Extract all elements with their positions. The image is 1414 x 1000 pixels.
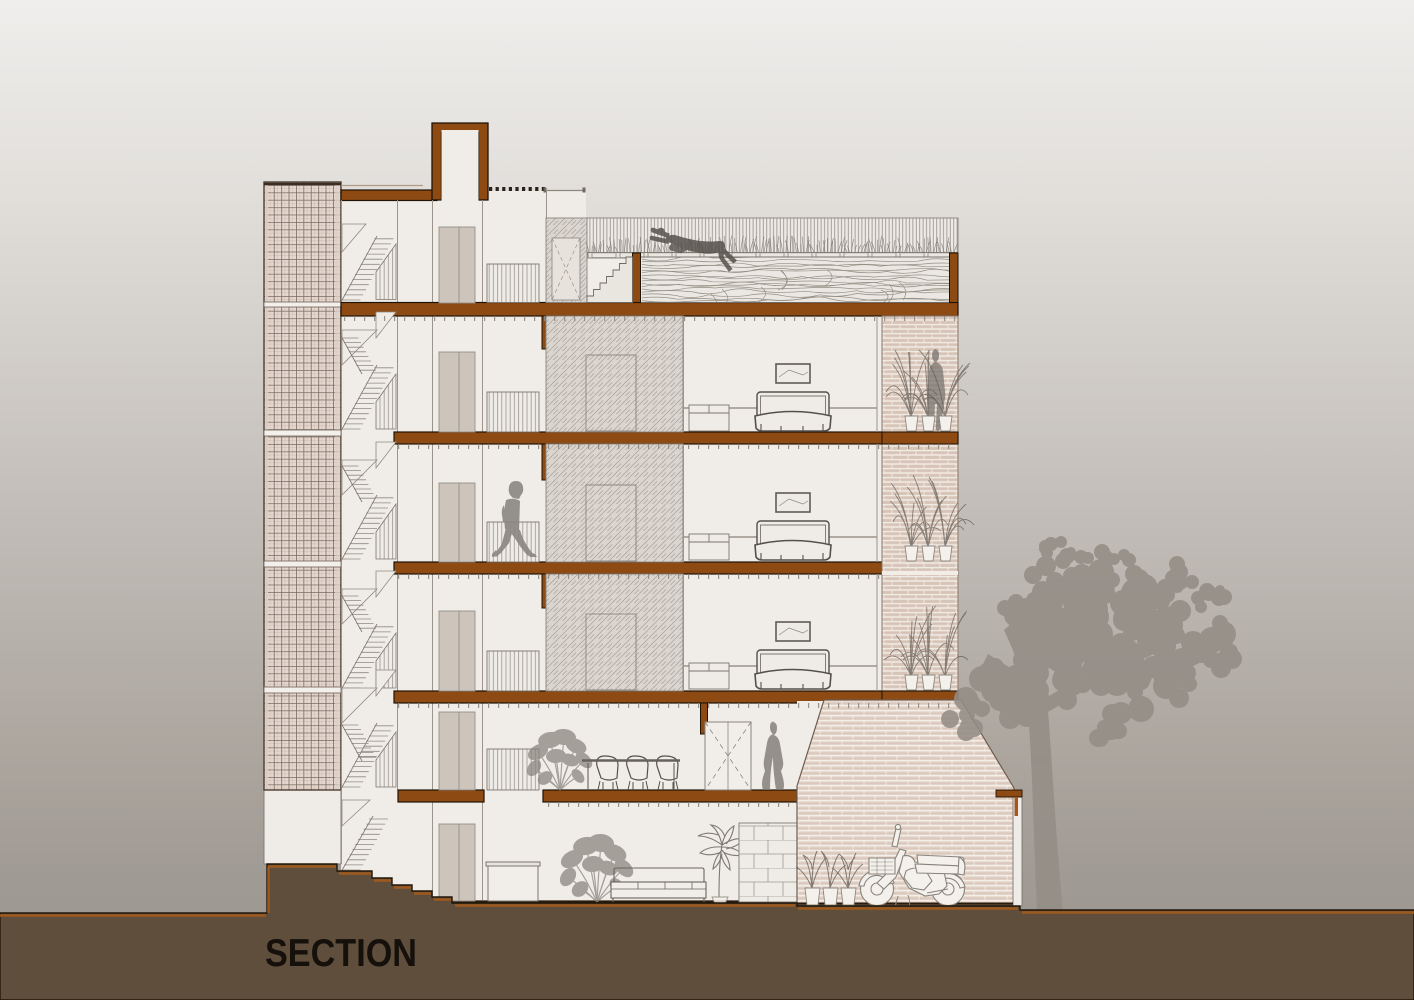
svg-text:SECTION: SECTION xyxy=(265,932,417,975)
